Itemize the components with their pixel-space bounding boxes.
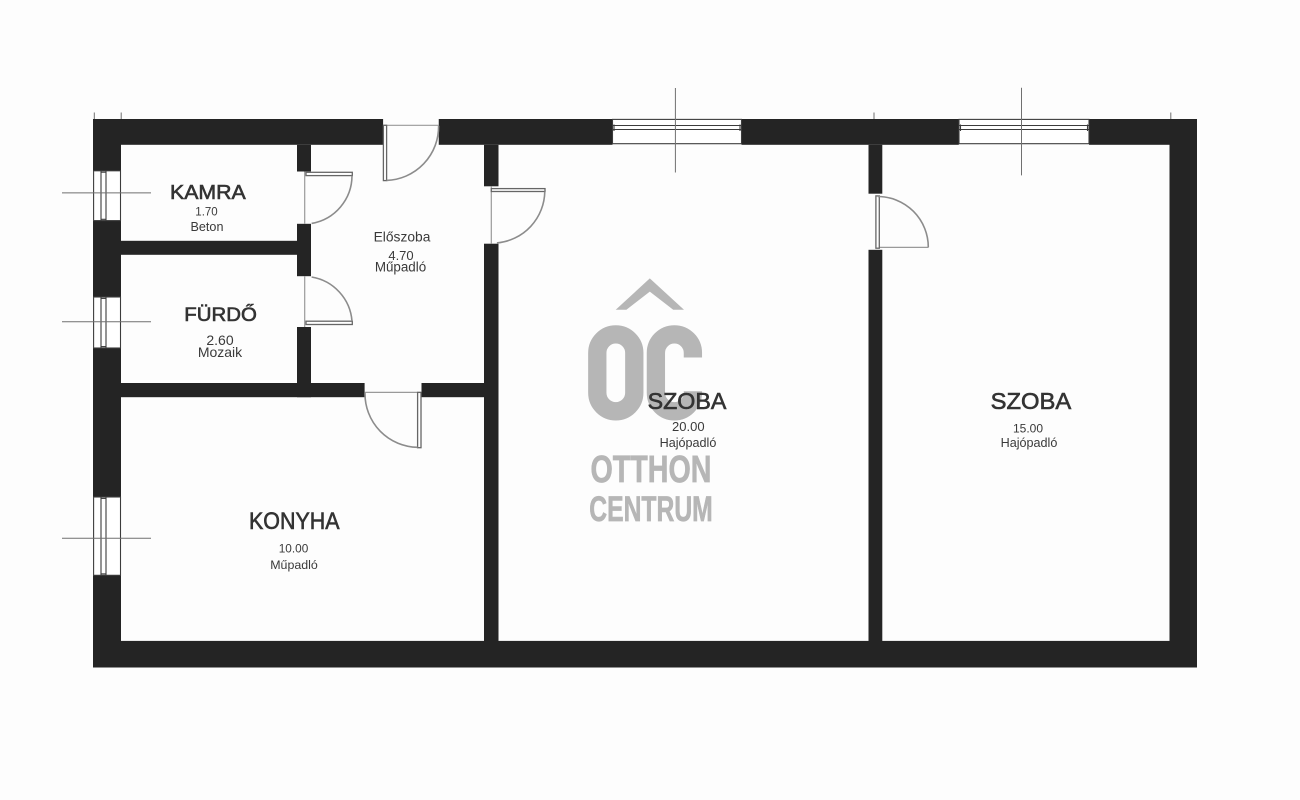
svg-text:KAMRA: KAMRA: [170, 181, 246, 204]
svg-text:Hajópadló: Hajópadló: [660, 436, 717, 450]
svg-text:20.00: 20.00: [672, 419, 705, 434]
svg-text:OTTHON: OTTHON: [591, 449, 712, 491]
svg-text:Előszoba: Előszoba: [374, 230, 431, 245]
svg-text:10.00: 10.00: [279, 542, 309, 556]
svg-text:KONYHA: KONYHA: [249, 508, 340, 535]
svg-text:CENTRUM: CENTRUM: [589, 490, 713, 529]
svg-text:15.00: 15.00: [1013, 421, 1043, 435]
svg-text:1.70: 1.70: [195, 207, 217, 219]
svg-text:Mozaik: Mozaik: [198, 344, 243, 360]
svg-text:FÜRDŐ: FÜRDŐ: [184, 304, 257, 326]
svg-text:Hajópadló: Hajópadló: [1001, 436, 1058, 450]
svg-text:Műpadló: Műpadló: [375, 260, 426, 275]
svg-text:SZOBA: SZOBA: [648, 388, 727, 414]
svg-text:Beton: Beton: [191, 220, 224, 234]
svg-text:Műpadló: Műpadló: [270, 558, 318, 572]
svg-text:SZOBA: SZOBA: [991, 388, 1072, 414]
